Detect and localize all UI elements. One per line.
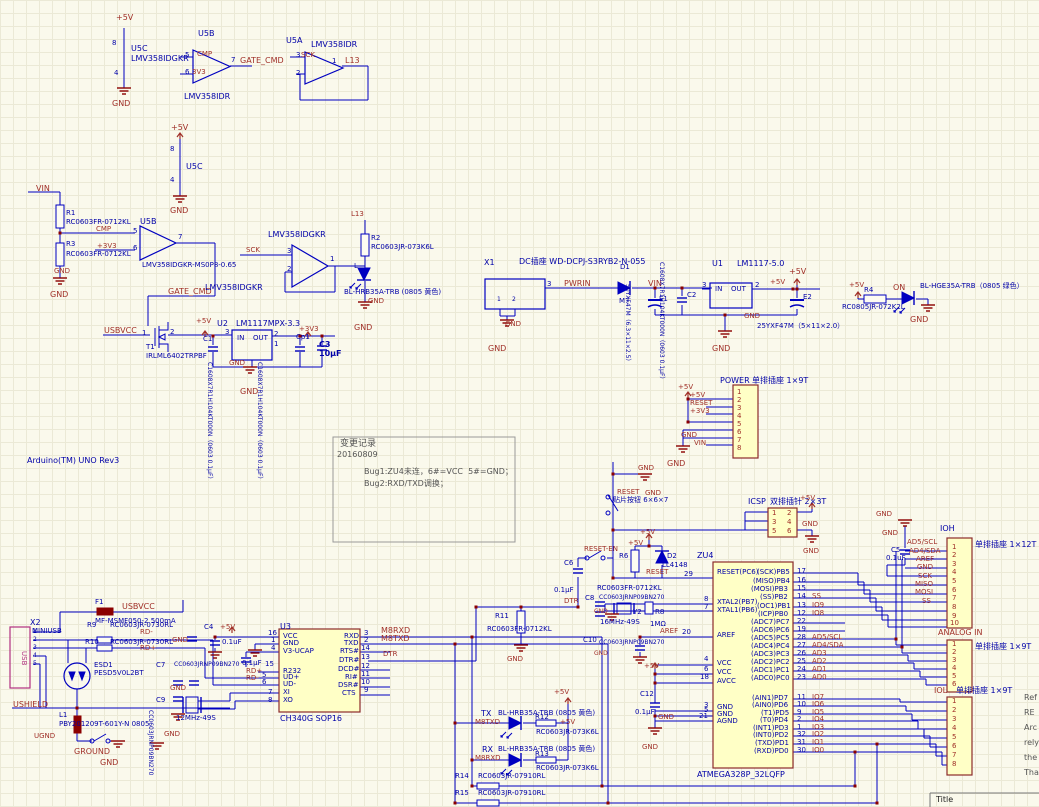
text-label: (AIN0)PD6 <box>752 702 788 709</box>
text-label: 3 <box>737 405 741 412</box>
text-label: M8TXD <box>475 719 500 726</box>
text-label: U1 <box>712 260 723 268</box>
text-label: 10 <box>361 679 370 686</box>
text-label: 16 <box>797 577 806 584</box>
text-label: GND <box>54 268 70 275</box>
text-label: 4 <box>704 656 708 663</box>
text-label: +5V <box>171 124 188 132</box>
text-label: 12 <box>361 663 370 670</box>
text-label: (ADC6)PC6 <box>751 627 790 634</box>
text-label: L13 <box>345 57 360 65</box>
text-label: XI <box>283 689 290 696</box>
text-label: UGND <box>34 733 55 740</box>
text-label: 2 <box>364 637 368 644</box>
text-label: AREF <box>916 556 934 563</box>
text-label: +5V <box>196 318 211 325</box>
text-label: LM1117MPX-3.3 <box>236 320 300 328</box>
text-label: GND <box>876 511 892 518</box>
text-label: 4 <box>170 177 174 184</box>
text-label: 15 <box>265 661 274 668</box>
text-label: 26 <box>797 650 806 657</box>
text-label: RC0603FR-0712KL <box>487 626 552 633</box>
crystal-body <box>617 603 631 614</box>
text-label: M8RXD <box>475 755 501 762</box>
text-label: C4 <box>204 624 213 631</box>
text-label: 2 <box>33 637 37 643</box>
text-label: 3 <box>296 52 300 59</box>
text-label: R14 <box>455 773 469 780</box>
text-label: (OC1)PB1 <box>757 603 791 610</box>
text-label: (INT0)PD2 <box>753 732 789 739</box>
text-label: C3 <box>319 341 330 349</box>
jumper-switch <box>601 556 605 560</box>
text-label: CTS <box>342 690 356 697</box>
text-label: GND <box>100 759 118 767</box>
led-symbol <box>358 268 370 280</box>
text-label: 4 <box>952 569 956 576</box>
text-label: 8 <box>952 761 956 768</box>
text-label: +5V <box>849 282 864 289</box>
ic-body <box>947 538 972 628</box>
text-label: LMV358IDGKR <box>205 284 263 292</box>
text-label: R10 <box>85 639 99 646</box>
text-label: USBVCC <box>122 603 155 611</box>
text-label: 2 <box>170 329 174 336</box>
text-label: 5 <box>952 673 956 680</box>
text-label: RC0603JR-07910RL <box>478 773 545 780</box>
resistor-body <box>477 800 499 806</box>
text-label: +5V <box>554 689 569 696</box>
text-label: GND <box>172 637 188 644</box>
junction-dot <box>612 529 615 532</box>
text-label: CC0603JRNP09BN270 <box>599 640 664 646</box>
text-label: TXD <box>344 640 358 647</box>
text-label: Arc <box>1024 724 1037 732</box>
junction-dot <box>454 802 457 805</box>
text-label: BL-HRB35A-TRB (0805 黄色) <box>344 289 441 296</box>
text-label: DSR# <box>338 682 359 689</box>
text-label: PESD5V0L2BT <box>94 670 144 677</box>
text-label: 6 <box>133 245 137 252</box>
text-label: R13 <box>535 751 549 758</box>
text-label: 30 <box>797 747 806 754</box>
text-label: GND <box>170 207 188 215</box>
text-label: 17 <box>797 568 806 575</box>
text-label: LMV358IDR <box>311 41 357 49</box>
text-label: AGND <box>717 718 738 725</box>
text-label: 6 <box>737 429 741 436</box>
text-label: 4 <box>114 70 118 77</box>
text-label: U2 <box>217 320 228 328</box>
component-body <box>485 279 545 309</box>
power-flag-5v <box>177 133 183 139</box>
text-label: X1 <box>484 259 495 267</box>
text-label: IOL <box>934 687 947 695</box>
text-label: +5V <box>640 529 655 536</box>
junction-dot <box>577 606 580 609</box>
text-label: 14 <box>797 593 806 600</box>
text-label: +5V <box>628 540 643 547</box>
text-label: 10μF <box>319 350 341 358</box>
text-label: AD2 <box>812 658 827 665</box>
text-label: GND <box>283 640 299 647</box>
text-label: +5V <box>789 268 806 276</box>
text-label: CC0603JRNP09BN270 <box>174 662 239 668</box>
text-label: 2 <box>512 297 516 303</box>
text-label: 12MHz-49S <box>176 715 216 722</box>
text-label: AD1 <box>812 666 827 673</box>
text-label: GND <box>112 100 130 108</box>
text-label: 3 <box>702 282 706 289</box>
text-label: RC0603JR-073K6L <box>536 729 599 736</box>
text-label: (RXD)PD0 <box>754 748 789 755</box>
text-label: 13 <box>797 602 806 609</box>
text-label: C1608X7R1H104KT000N（0603 0.1μF） <box>256 362 262 482</box>
junction-dot <box>471 759 474 762</box>
text-label: GND <box>667 460 685 468</box>
text-label: C6 <box>564 560 573 567</box>
text-label: +5V <box>800 495 815 502</box>
text-label: (ADC1)PC1 <box>751 667 790 674</box>
text-label: 23 <box>797 674 806 681</box>
esd-diode-symbol <box>64 663 90 689</box>
junction-dot <box>724 314 727 317</box>
text-label: (ADC2)PC2 <box>751 659 790 666</box>
led-arrows <box>501 732 512 738</box>
text-label: IRLML6402TRPBF <box>146 353 207 360</box>
text-label: AD4/SDA <box>909 548 941 555</box>
text-label: M8TXD <box>381 635 410 643</box>
text-label: L13 <box>351 211 364 218</box>
junction-dot <box>76 707 79 710</box>
text-label: IN <box>237 335 244 342</box>
text-label: SS <box>812 593 821 600</box>
text-label: +5V <box>690 392 705 399</box>
text-label: AD5/SCL <box>907 539 937 546</box>
junction-dot <box>520 606 523 609</box>
junction-dot <box>796 288 799 291</box>
text-label: SS <box>922 598 931 605</box>
text-label: GATE_CMD <box>240 57 284 65</box>
text-label: IO6 <box>812 701 824 708</box>
text-label: RD- <box>140 629 153 636</box>
junction-dot <box>792 288 795 291</box>
text-label: 7 <box>231 57 235 64</box>
text-label: 7 <box>952 752 956 759</box>
junction-dot <box>895 638 898 641</box>
text-label: GND <box>744 313 760 320</box>
text-label: SCK <box>301 52 315 59</box>
text-label: 1 <box>497 297 501 303</box>
text-label: AD3 <box>812 650 827 657</box>
text-label: 2 <box>952 552 956 559</box>
text-label: R4 <box>864 287 873 294</box>
text-label: 8 <box>704 596 708 603</box>
text-label: 18 <box>700 674 709 681</box>
led-symbol <box>509 754 521 766</box>
text-label: LMV358IDGKR-MS0P8-0.65 <box>142 262 236 269</box>
text-label: C1608X7R1H104KT000N（0603 0.1μF） <box>658 262 664 382</box>
text-label: 3V3 <box>192 69 206 76</box>
text-label: 22 <box>797 618 806 625</box>
text-label: C8 <box>585 595 594 602</box>
text-label: 15 <box>797 585 806 592</box>
text-label: 1 <box>332 58 336 65</box>
junction-dot <box>654 673 657 676</box>
crystal-body <box>186 697 198 713</box>
text-label: R11 <box>495 613 509 620</box>
text-label: C10 <box>583 637 597 644</box>
text-label: 5 <box>185 52 189 59</box>
fuse-body <box>97 608 113 615</box>
junction-dot <box>854 785 857 788</box>
text-label: BL-HGE35A-TRB（0805 绿色） <box>920 283 1024 290</box>
text-label: 4 <box>952 665 956 672</box>
text-label: 6 <box>262 679 266 686</box>
schematic-geometry: USB <box>0 0 1039 807</box>
text-label: 6 <box>787 528 791 535</box>
text-label: GND <box>638 465 654 472</box>
text-label: Bug2:RXD/TXD调换； <box>364 480 448 488</box>
text-label: RC0603FR-0712KL <box>597 585 662 592</box>
text-label: SCK <box>246 247 260 254</box>
text-label: 6 <box>704 666 708 673</box>
text-label: USBVCC <box>104 327 137 335</box>
text-label: D1 <box>620 264 630 271</box>
text-label: GND <box>882 530 898 537</box>
text-label: 8 <box>268 697 272 704</box>
text-label: C5 <box>891 547 900 554</box>
junction-dot <box>681 287 684 290</box>
text-label: Title <box>936 796 953 804</box>
text-label: LM1117-5.0 <box>737 260 784 268</box>
text-label: 2 <box>952 707 956 714</box>
text-label: GND <box>802 521 818 528</box>
text-label: X2 <box>30 619 41 627</box>
text-label: Arduino(TM) UNO Rev3 <box>27 457 119 465</box>
text-label: XTAL2(PB7) <box>717 599 758 606</box>
led-symbol <box>509 717 521 729</box>
text-label: 6 <box>185 69 189 76</box>
text-label: 3 <box>772 519 776 526</box>
text-label: RE <box>1024 709 1035 717</box>
text-label: 24 <box>797 666 806 673</box>
text-label: GND <box>507 656 523 663</box>
text-label: 4 <box>33 653 37 659</box>
text-label: GND <box>50 291 68 299</box>
text-label: IOH <box>940 525 955 533</box>
text-label: 单排插座 1×9T <box>975 643 1031 651</box>
power-flag-5v <box>794 279 800 285</box>
text-label: U5A <box>286 37 302 45</box>
text-label: U3 <box>280 623 291 631</box>
text-label: Cp1 <box>296 334 310 341</box>
text-label: 1 <box>737 389 741 396</box>
text-label: 6 <box>952 587 956 594</box>
text-label: 12 <box>797 610 806 617</box>
resistor-body <box>645 602 653 614</box>
polar-capacitor <box>790 305 804 307</box>
junction-dot <box>471 785 474 788</box>
text-label: GND <box>164 731 180 738</box>
junction-dot <box>876 743 879 746</box>
text-label: 27 <box>797 642 806 649</box>
text-label: R8 <box>655 609 664 616</box>
text-label: 20160809 <box>337 451 378 459</box>
text-label: D2 <box>667 553 677 560</box>
text-label: 1 <box>142 330 146 337</box>
text-label: 3 <box>33 645 37 651</box>
text-label: (MISO)PB4 <box>753 578 790 585</box>
text-label: PBY201209T-601Y-N 0805 <box>59 721 149 728</box>
text-label: 2 <box>274 331 278 338</box>
junction-dot <box>471 636 474 639</box>
text-label: GND <box>488 345 506 353</box>
power-flag-5v <box>565 698 571 704</box>
text-label: 5 <box>952 734 956 741</box>
text-label: XO <box>283 697 293 704</box>
text-label: ON <box>893 284 905 292</box>
text-label: 双排插针 2×3T <box>770 498 826 506</box>
jumper-switch <box>106 739 110 743</box>
text-label: RC0805JR-072K2L <box>842 304 905 311</box>
text-label: U5B <box>198 30 214 38</box>
text-label: CMP <box>96 226 111 233</box>
text-label: +3V3 <box>690 408 710 415</box>
text-label: +5V <box>116 14 133 22</box>
text-label: 13 <box>361 654 370 661</box>
text-label: RC0603JR-073K6L <box>371 244 434 251</box>
text-label: 50YXF47M（6.3×11×2.5） <box>624 284 630 364</box>
text-label: GND <box>354 324 372 332</box>
text-label: VCC <box>717 669 732 676</box>
text-label: VCC <box>717 660 732 667</box>
text-label: R9 <box>87 622 96 629</box>
text-label: C2 <box>687 292 696 299</box>
text-label: GND <box>712 345 730 353</box>
esd-diode-symbol <box>69 672 85 680</box>
text-label: GND <box>229 360 245 367</box>
text-label: U5B <box>140 218 156 226</box>
resistor-body <box>864 295 886 303</box>
text-label: 0.1uF <box>222 639 242 646</box>
text-label: 31 <box>797 739 806 746</box>
text-label: C1 <box>203 336 212 343</box>
text-label: 3 <box>952 657 956 664</box>
text-label: IO1 <box>812 739 824 746</box>
text-label: (ADC4)PC4 <box>751 643 790 650</box>
text-label: MISO <box>915 581 933 588</box>
text-label: IO8 <box>812 610 824 617</box>
text-label: 0.1μF <box>554 587 574 594</box>
text-label: AD0 <box>812 674 827 681</box>
text-label: +5V <box>560 719 575 726</box>
text-label: 7 <box>952 595 956 602</box>
text-label: 14 <box>361 645 370 652</box>
junction-dot <box>612 473 615 476</box>
text-label: 10 <box>950 620 959 627</box>
text-label: 2 <box>787 510 791 517</box>
resistor-body <box>56 205 64 228</box>
text-label: TX <box>481 710 491 718</box>
text-label: 7 <box>737 437 741 444</box>
text-label: (SS)PB2 <box>760 594 788 601</box>
text-label: C1608X7R1H104KT000N（0603 0.1μF） <box>206 362 212 482</box>
text-label: 1 <box>330 256 334 263</box>
text-label: RI# <box>345 674 358 681</box>
text-label: ANALOG IN <box>938 629 982 637</box>
text-label: GND <box>658 714 674 721</box>
text-label: 28 <box>797 634 806 641</box>
text-label: ESD1 <box>94 662 113 669</box>
text-label: 7 <box>178 234 182 241</box>
text-label: 0.1uF <box>886 555 906 562</box>
text-label: C12 <box>640 691 654 698</box>
text-label: R3 <box>66 241 75 248</box>
text-label: +5V <box>678 384 693 391</box>
text-label: 5 <box>133 228 137 235</box>
usb-label: USB <box>20 651 28 666</box>
text-label: (T0)PD4 <box>760 717 788 724</box>
text-label: R2 <box>371 235 380 242</box>
text-label: 1 <box>772 510 776 517</box>
text-label: AD5/SCL <box>812 634 842 641</box>
text-label: CH340G SOP16 <box>280 715 342 723</box>
jumper-switch <box>94 734 106 741</box>
text-label: ICSP <box>748 498 766 506</box>
text-label: RC0603JR-073K6L <box>536 765 599 772</box>
text-label: 3 <box>547 281 551 288</box>
text-label: RESET <box>646 569 668 576</box>
junction-dot <box>648 545 651 548</box>
text-label: 8 <box>112 40 116 47</box>
text-label: DTR <box>564 598 579 605</box>
text-label: 1 <box>952 641 956 648</box>
text-label: +3V3 <box>299 326 319 333</box>
text-label: 4 <box>952 725 956 732</box>
resistor-body <box>56 243 64 266</box>
text-label: RC0603FR-0712KL <box>66 251 131 258</box>
text-label: 7 <box>268 689 272 696</box>
junction-dot <box>454 643 457 646</box>
text-label: 7 <box>704 604 708 611</box>
text-label: +3V3 <box>97 243 117 250</box>
text-label: 5 <box>737 421 741 428</box>
text-label: 0.1μF <box>635 709 655 716</box>
text-label: (ADC3)PC3 <box>751 651 790 658</box>
text-label: 4 <box>787 519 791 526</box>
text-label: XTAL1(PB6) <box>717 607 758 614</box>
text-label: UD- <box>283 681 296 688</box>
text-label: 单排插座 1×9T <box>956 687 1012 695</box>
text-label: GND <box>917 564 933 571</box>
text-label: 32 <box>797 731 806 738</box>
text-label: T1 <box>146 344 155 351</box>
text-label: L1 <box>59 712 67 719</box>
text-label: 5 <box>772 528 776 535</box>
text-label: DTR# <box>339 657 359 664</box>
text-label: C9 <box>156 697 165 704</box>
text-label: POWER <box>720 377 750 385</box>
text-label: +5V <box>770 279 785 286</box>
text-label: CC0603JRNP09BN270 <box>599 595 664 601</box>
text-label: 4 <box>271 645 275 652</box>
text-label: R1 <box>66 210 75 217</box>
text-label: CMP <box>197 51 212 58</box>
text-label: RC0603JR-07910RL <box>478 790 545 797</box>
text-label: +5V <box>220 624 235 631</box>
text-label: GND <box>505 321 521 328</box>
